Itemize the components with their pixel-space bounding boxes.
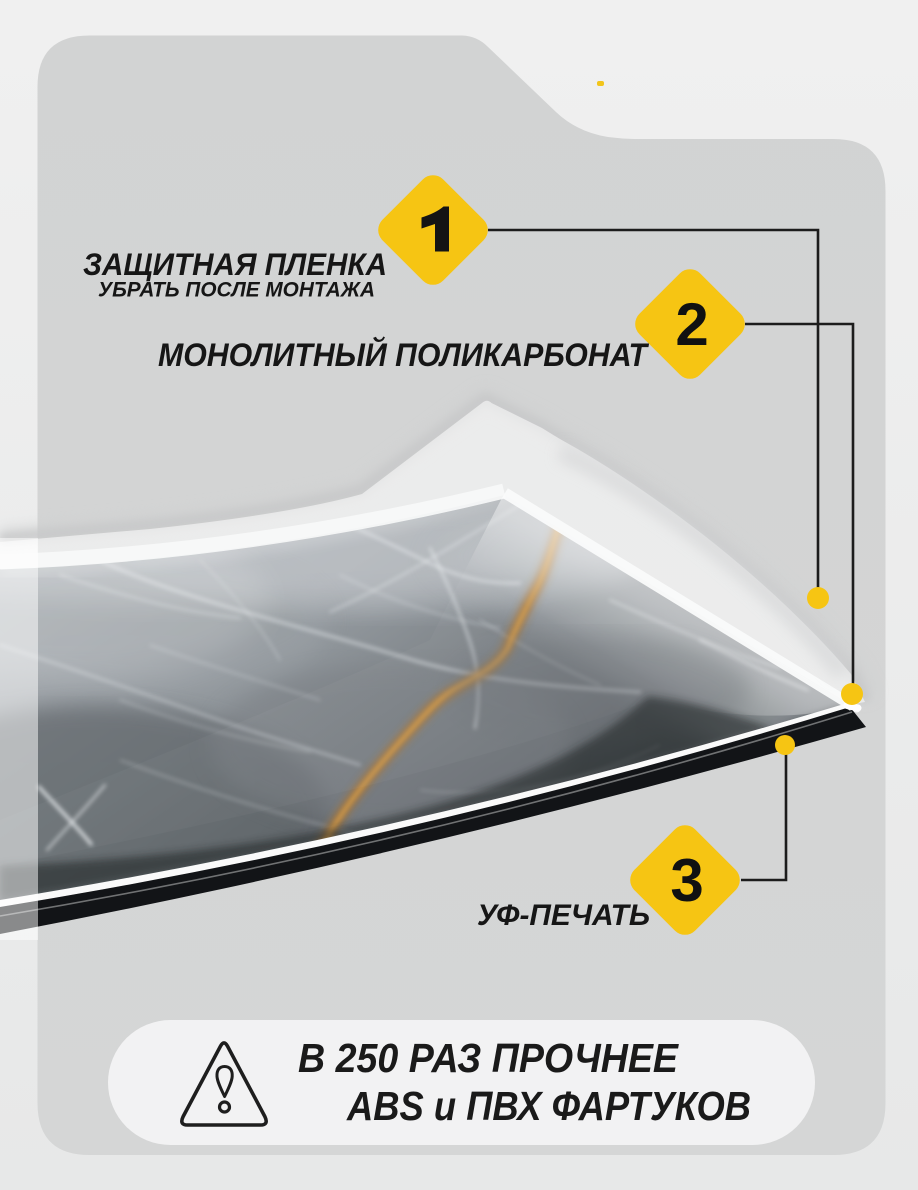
svg-text:ЗАЩИТНАЯ ПЛЕНКА: ЗАЩИТНАЯ ПЛЕНКА [83, 246, 387, 282]
svg-text:ABS и ПВХ ФАРТУКОВ: ABS и ПВХ ФАРТУКОВ [346, 1083, 751, 1129]
svg-text:В 250 РАЗ ПРОЧНЕЕ: В 250 РАЗ ПРОЧНЕЕ [298, 1035, 680, 1081]
svg-text:3: 3 [670, 847, 703, 914]
svg-text:МОНОЛИТНЫЙ ПОЛИКАРБОНАТ: МОНОЛИТНЫЙ ПОЛИКАРБОНАТ [158, 337, 649, 373]
svg-text:2: 2 [675, 291, 708, 358]
svg-text:УФ-ПЕЧАТЬ: УФ-ПЕЧАТЬ [477, 899, 650, 932]
svg-text:УБРАТЬ ПОСЛЕ МОНТАЖА: УБРАТЬ ПОСЛЕ МОНТАЖА [98, 279, 375, 302]
